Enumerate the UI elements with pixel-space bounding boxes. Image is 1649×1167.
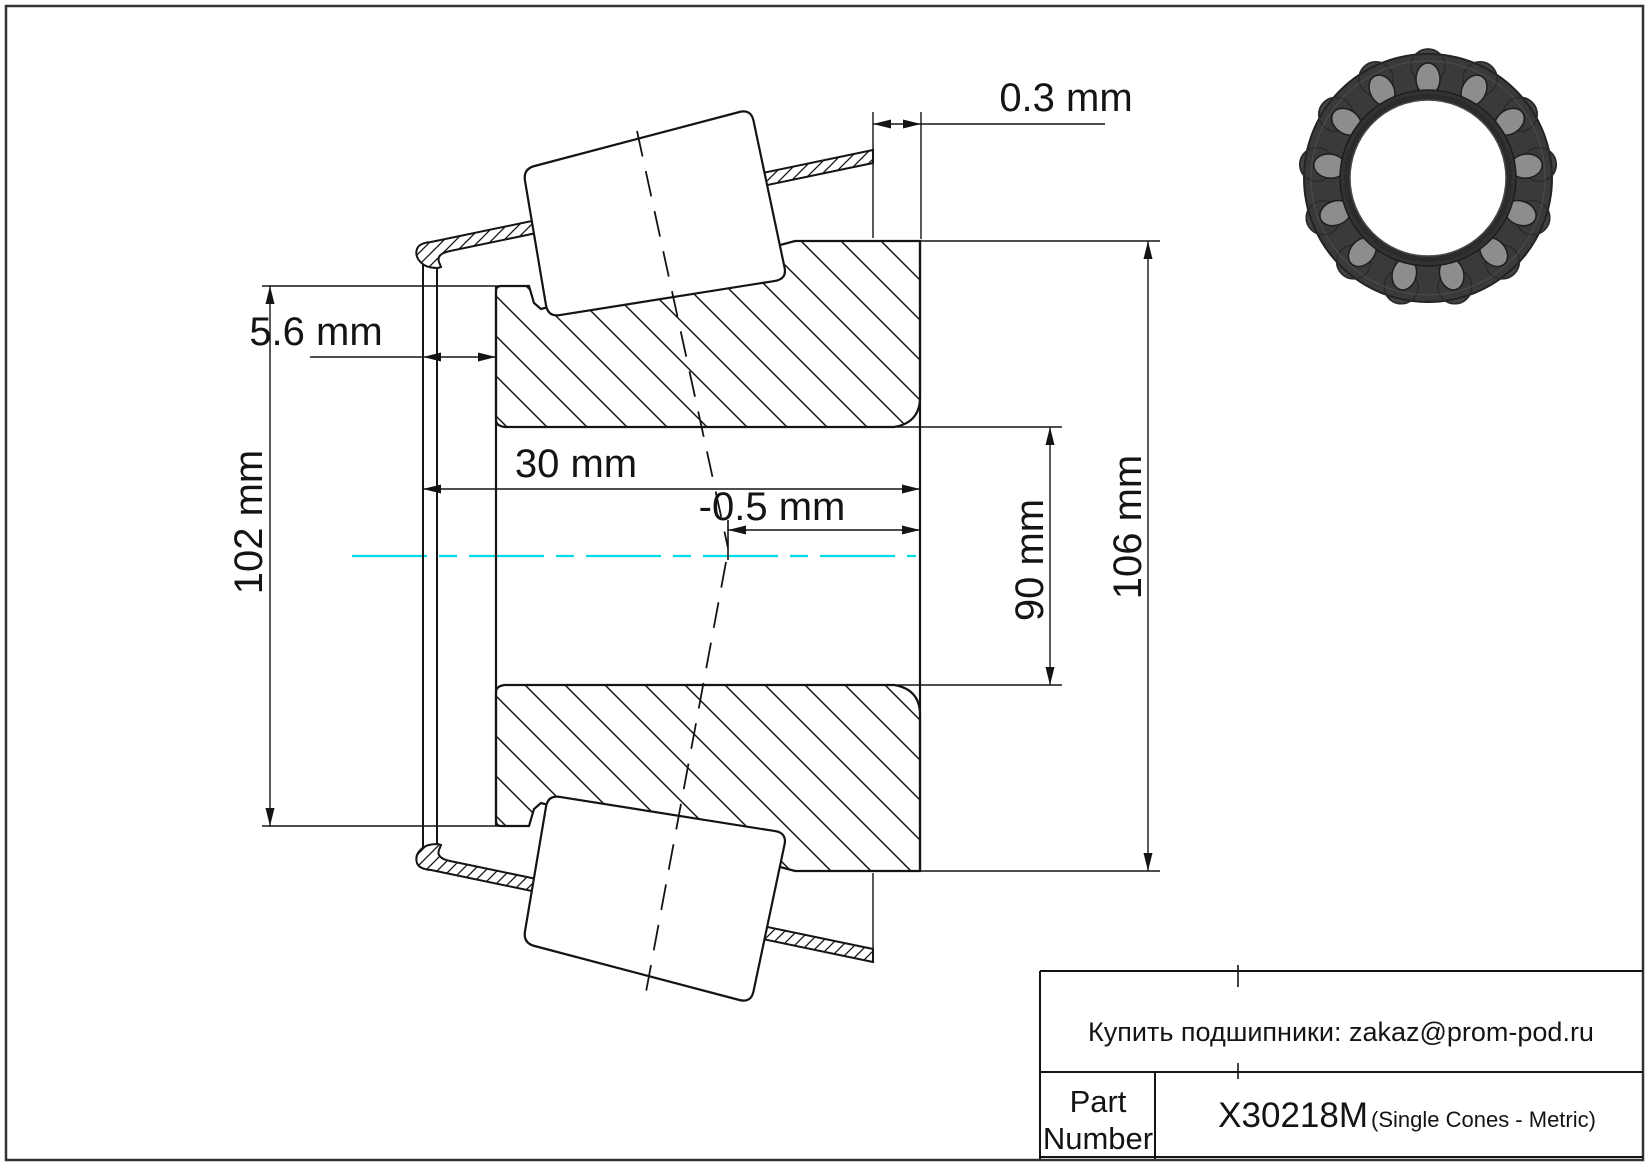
dimension-label: 106 mm — [1106, 455, 1150, 600]
arrow-up-icon — [1144, 241, 1153, 259]
dimension-label: 30 mm — [515, 442, 637, 486]
part-label-line2: Number — [1043, 1121, 1153, 1156]
arrow-right-icon — [902, 526, 920, 535]
dimension-5-6-mm: 5.6 mm — [249, 310, 496, 362]
title-block: Купить подшипники: zakaz@prom-pod.ru Par… — [1040, 965, 1643, 1159]
dimension-neg-0-5-mm: -0.5 mm — [699, 485, 920, 535]
dimension-106-mm: 106 mm — [1106, 241, 1153, 871]
roller-lower — [525, 797, 785, 1001]
dimension-30-mm: 30 mm — [423, 442, 920, 494]
arrow-right-icon — [478, 353, 496, 362]
dimension-102-mm: 102 mm — [227, 286, 275, 826]
arrow-up-icon — [266, 286, 275, 304]
dimension-label: 0.3 mm — [999, 76, 1132, 120]
dimension-90-mm: 90 mm — [1008, 427, 1055, 685]
dimension-0-3-mm: 0.3 mm — [873, 76, 1133, 129]
arrow-down-icon — [1046, 667, 1055, 685]
contact-text: Купить подшипники: zakaz@prom-pod.ru — [1088, 1017, 1594, 1047]
arrow-left-icon — [423, 353, 441, 362]
part-number: X30218M — [1218, 1096, 1368, 1135]
arrow-right-icon — [902, 485, 920, 494]
dimension-label: 90 mm — [1008, 499, 1052, 621]
drawing-sheet: 0.3 mm 5.6 mm 30 mm -0.5 mm 90 mm 102 mm — [0, 0, 1649, 1167]
arrow-down-icon — [266, 808, 275, 826]
arrow-up-icon — [1046, 427, 1055, 445]
technical-drawing: 0.3 mm 5.6 mm 30 mm -0.5 mm 90 mm 102 mm — [0, 0, 1649, 1167]
dimension-label: -0.5 mm — [699, 485, 846, 529]
bearing-3d-render-image — [1300, 49, 1556, 304]
arrow-left-icon — [423, 485, 441, 494]
arrow-down-icon — [1144, 853, 1153, 871]
part-type: (Single Cones - Metric) — [1371, 1107, 1596, 1132]
bearing-bore-hole — [1350, 100, 1506, 256]
part-label-line1: Part — [1070, 1084, 1127, 1119]
dimension-label: 102 mm — [227, 450, 271, 595]
arrow-left-icon — [873, 120, 891, 129]
arrow-right-icon — [903, 120, 921, 129]
